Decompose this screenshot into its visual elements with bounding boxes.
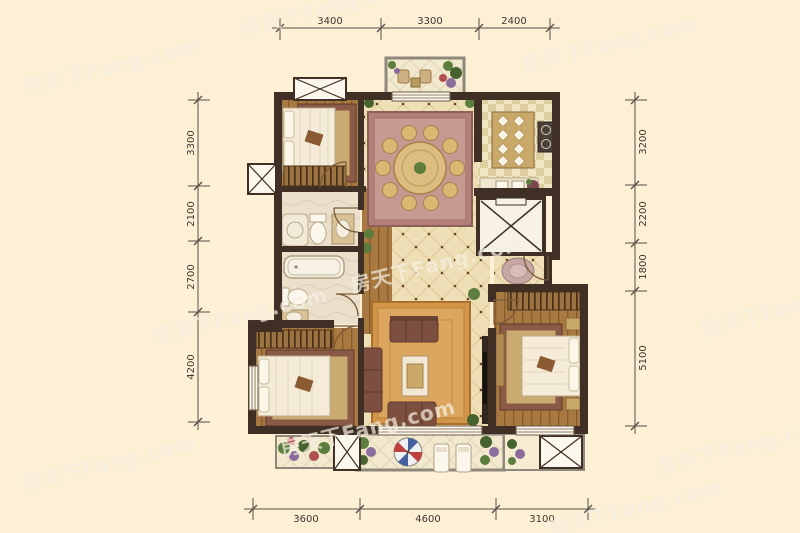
sliding-window [378,426,482,435]
bathtub-drain [295,266,298,269]
sliding-window [516,426,574,435]
bay-window [294,78,346,100]
dining-chair [383,139,398,154]
dining-chair [450,161,465,176]
lounger-pillow [458,447,469,452]
dim-label-bottom-3: 3100 [529,514,554,525]
dim-label-left-4: 4200 [186,354,197,379]
toilet-tank [310,214,326,222]
dining-chair [376,161,391,176]
bed-top-left [283,108,335,172]
dim-label-left-2: 2100 [186,201,197,226]
plant [468,288,480,300]
bathroom-1-fixtures [282,214,354,246]
toilet-icon [310,222,326,244]
elevator [478,198,544,254]
dim-label-top-1: 3400 [317,16,342,27]
dimension-right: 3200 2200 1800 5100 [625,92,649,434]
flower-bed [276,436,334,468]
nightstand [566,318,580,330]
shower [282,214,308,246]
elevator-door [496,198,526,205]
table-centerpiece [414,162,426,174]
dim-label-bottom-2: 4600 [415,514,440,525]
dim-label-right-2: 2200 [638,201,649,226]
plant [526,179,532,185]
dim-label-right-4: 5100 [638,345,649,370]
dim-label-left-3: 2700 [186,264,197,289]
nightstand [566,398,580,410]
dim-label-bottom-1: 3600 [293,514,318,525]
wardrobe [284,166,346,186]
sink-icon [336,220,350,238]
dining-chair [443,139,458,154]
floor-plan-svg: 3400 3300 2400 3300 2100 2700 4200 3200 … [0,0,800,533]
floor-plan-page: 房天下Fang.com 房天下Fang.com 房天下Fang.com 房天下F… [0,0,800,533]
tv-icon [483,352,487,404]
balcony-top [386,58,464,96]
toilet-icon [288,289,308,305]
dimension-top: 3400 3300 2400 [272,16,560,40]
dining-chair [443,183,458,198]
dim-label-left-1: 3300 [186,130,197,155]
dresser [496,334,504,386]
dimension-left: 3300 2100 2700 4200 [186,92,210,430]
lounger-pillow [436,447,447,452]
bed-bottom-left [258,356,330,416]
dining-chair [402,126,417,141]
wardrobe [508,292,580,310]
balcony-table [411,78,420,87]
dim-label-right-1: 3200 [638,129,649,154]
sofa [390,320,438,342]
wardrobe [256,330,332,348]
entry-round-rug-inner [509,264,527,278]
dining-chair [424,126,439,141]
coffee-table-inner [407,364,423,388]
sliding-window [249,366,258,410]
dining-chair [424,196,439,211]
stove-icon [538,122,554,152]
dim-label-right-3: 1800 [638,254,649,279]
dim-label-top-3: 2400 [501,16,526,27]
balcony-bottom [356,434,504,472]
dimension-bottom: 3600 4600 3100 [244,498,596,525]
balcony-chair [420,70,431,83]
sofa [362,348,382,412]
dining-chair [383,183,398,198]
sliding-window [392,92,450,101]
dim-label-top-2: 3300 [417,16,442,27]
bay-window [248,164,276,194]
dining-chair [402,196,417,211]
window [540,436,582,468]
window [334,434,360,470]
sofa [388,402,436,426]
plant [467,414,479,426]
umbrella-icon [394,438,422,466]
